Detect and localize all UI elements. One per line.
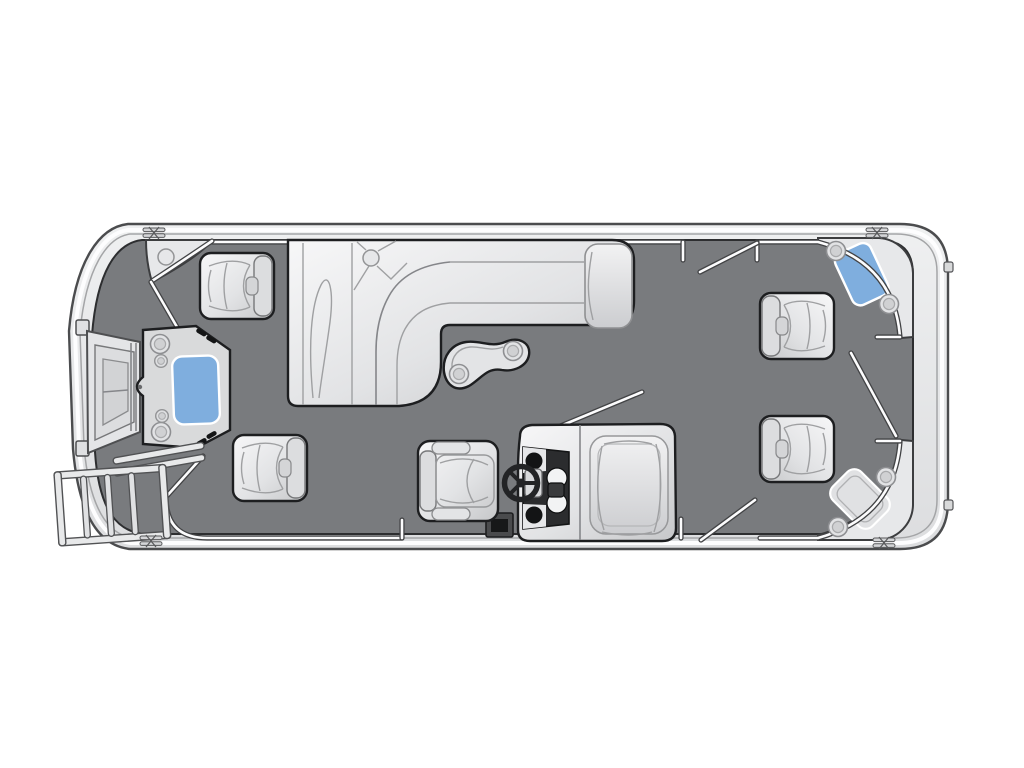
- cup-holder: [880, 295, 899, 314]
- bow-table-blue-top: [172, 355, 220, 425]
- aft-starboard-captain-chair: [760, 416, 834, 482]
- helm-captain-chair: [418, 441, 498, 521]
- aft-port-captain-chair: [760, 293, 834, 359]
- gauge-dial: [526, 507, 543, 524]
- cup-holder: [155, 355, 168, 368]
- hull-fitting-tab: [944, 262, 953, 272]
- bow-starboard-captain-chair: [233, 435, 307, 501]
- cup-holder: [829, 518, 848, 537]
- cup-holder: [158, 249, 174, 265]
- cup-holder: [151, 335, 170, 354]
- cup-holder: [156, 410, 169, 423]
- pontoon-floorplan-diagram: [0, 0, 1024, 768]
- cup-holder: [504, 342, 523, 361]
- cup-holder: [152, 423, 171, 442]
- bow-port-captain-chair: [200, 253, 274, 319]
- cup-holder: [363, 250, 379, 266]
- floorplan-stage: [0, 0, 1024, 768]
- cup-holder: [450, 365, 469, 384]
- cup-holder: [877, 468, 896, 487]
- cup-holder: [827, 242, 846, 261]
- hull-fitting-tab: [944, 500, 953, 510]
- display-screen: [548, 483, 564, 497]
